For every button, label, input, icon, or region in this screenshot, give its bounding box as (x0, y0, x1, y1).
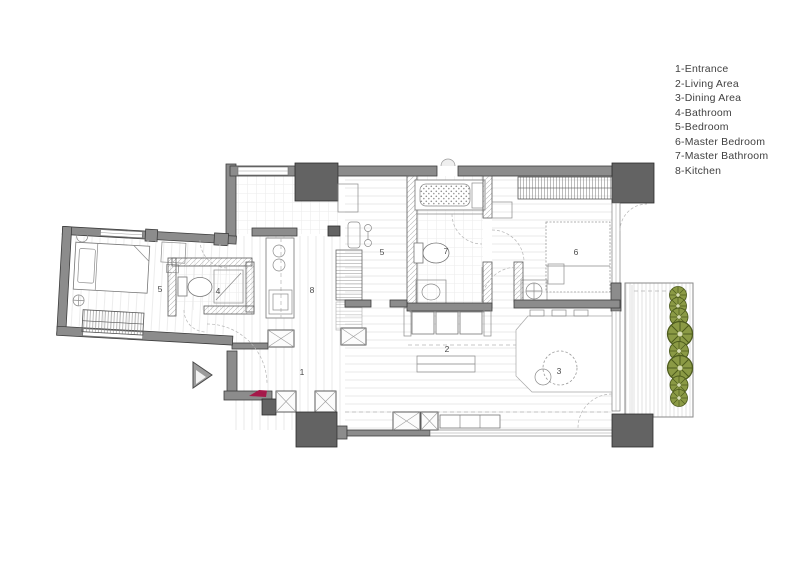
tree-icon (671, 390, 688, 407)
kitchen-counter (266, 238, 294, 318)
floor-lamp-icon (73, 295, 85, 307)
column-x-icon (268, 330, 294, 347)
toilet-icon (178, 277, 212, 297)
structural-column (296, 412, 337, 447)
legend-item-entrance: 1-Entrance (675, 62, 768, 77)
legend-item-kitchen: 8-Kitchen (675, 164, 768, 179)
room-number-master-bathroom: 7 (444, 246, 449, 256)
structural-column (612, 414, 653, 447)
column-x-icon (393, 412, 420, 430)
bed (546, 222, 610, 292)
balcony (625, 283, 693, 417)
room-number-living: 2 (445, 344, 450, 354)
wardrobe (82, 310, 144, 335)
legend-item-dining-area: 3-Dining Area (675, 91, 768, 106)
column-x-icon (276, 391, 296, 412)
legend-item-master-bathroom: 7-Master Bathroom (675, 149, 768, 164)
legend-item-bathroom: 4-Bathroom (675, 106, 768, 121)
legend: 1-Entrance 2-Living Area 3-Dining Area 4… (675, 62, 768, 178)
room-number-kitchen: 8 (310, 285, 315, 295)
floor-plan-page: 1 2 3 4 5 5 6 7 8 1-Entrance 2-Living Ar… (0, 0, 800, 565)
bathtub (415, 180, 485, 210)
room-number-bedroom-2: 5 (380, 247, 385, 257)
room-number-entrance: 1 (300, 367, 305, 377)
column-x-icon (341, 328, 366, 345)
legend-item-living-area: 2-Living Area (675, 77, 768, 92)
dining-rug (516, 316, 612, 392)
bed (73, 242, 150, 293)
pantry-shelves (336, 250, 362, 330)
door-swing (620, 204, 647, 231)
room-number-master-bedroom: 6 (574, 247, 579, 257)
entrance-arrow-icon (193, 362, 212, 388)
room-number-bathroom: 4 (216, 286, 221, 296)
column-x-icon (315, 391, 336, 412)
legend-item-bedroom: 5-Bedroom (675, 120, 768, 135)
tv-cabinet (440, 415, 500, 428)
column-x-icon (421, 412, 438, 430)
room-number-dining: 3 (557, 366, 562, 376)
wardrobe (518, 177, 612, 199)
room-number-bedroom: 5 (158, 284, 163, 294)
legend-item-master-bedroom: 6-Master Bedroom (675, 135, 768, 150)
